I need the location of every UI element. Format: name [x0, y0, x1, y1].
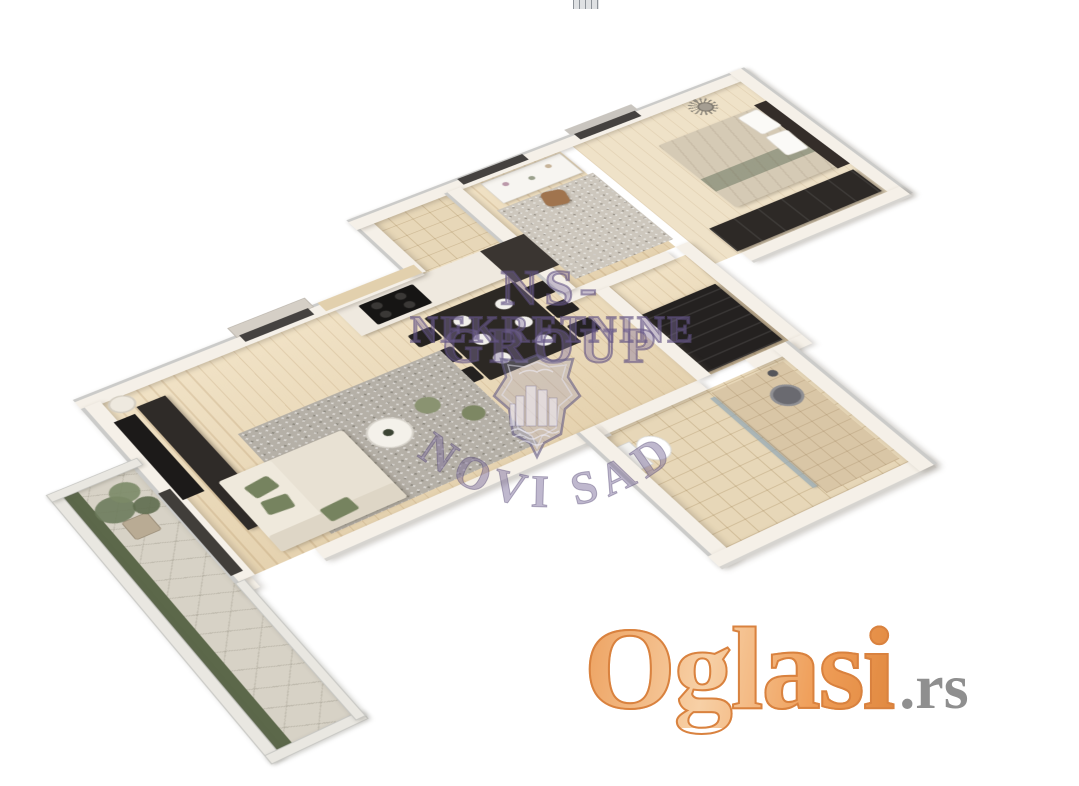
oglasi-logo-tld: .rs	[899, 655, 968, 719]
sliver-tile-grid	[573, 0, 599, 9]
coffee-table-plant	[381, 428, 396, 438]
oglasi-logo: Oglasi .rs	[584, 610, 969, 728]
previous-photo-edge-sliver	[573, 0, 747, 9]
sunburst-mirror-center	[694, 100, 718, 113]
oglasi-logo-brand: Oglasi	[584, 610, 893, 728]
listing-photo[interactable]: NS-GROUP NEKRETNINE NOVI SAD Oglasi .rs	[0, 0, 1079, 786]
